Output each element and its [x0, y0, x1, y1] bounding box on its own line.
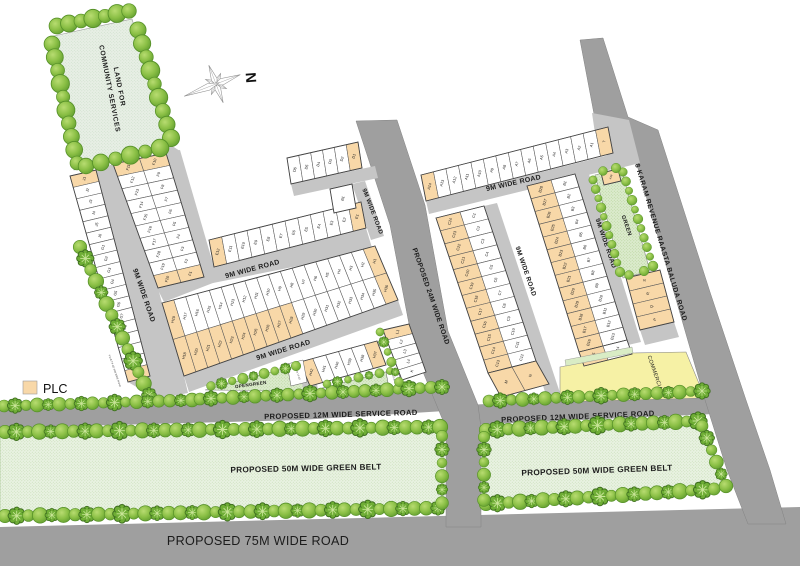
svg-text:PLC: PLC	[43, 382, 68, 396]
svg-text:PROPOSED 75M WIDE ROAD: PROPOSED 75M WIDE ROAD	[167, 534, 349, 548]
svg-text:N: N	[242, 72, 259, 84]
